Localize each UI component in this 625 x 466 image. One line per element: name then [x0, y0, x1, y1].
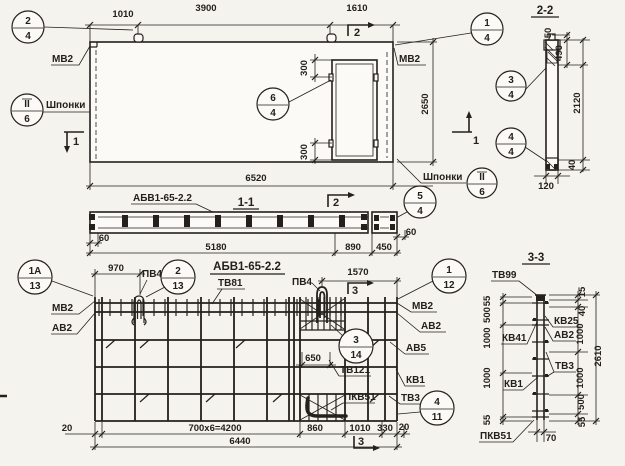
dim-970: 970 [108, 263, 124, 274]
dim-3900: 3900 [195, 3, 216, 14]
dim-right-500: 500 [576, 394, 587, 410]
cut-mark-3-top: 3 [348, 280, 374, 297]
opening-tab [329, 140, 333, 147]
dim-1610: 1610 [346, 3, 367, 14]
label-mv2-right: МВ2 [399, 54, 421, 65]
svg-text:3: 3 [358, 436, 364, 448]
dim-1010-cage: 1010 [349, 423, 370, 434]
svg-text:2: 2 [25, 16, 31, 27]
section-3-3: 3-3 55 500 1000 1000 55 15 40 1000 1000 … [479, 252, 604, 444]
label-shponki-right: Шпонки [423, 172, 462, 183]
svg-text:11: 11 [432, 412, 443, 423]
bar-column [532, 295, 549, 420]
leader-pv4-b [312, 283, 320, 291]
dim-right-40: 40 [577, 306, 588, 317]
dim-left-500: 500 [482, 307, 493, 323]
svg-text:1А: 1А [29, 266, 42, 277]
dense-mesh-top [300, 297, 345, 330]
svg-text:4: 4 [508, 90, 514, 101]
label-kv1-s33: КВ1 [504, 379, 523, 390]
svg-text:II: II [479, 172, 485, 183]
dim-left-1000b: 1000 [482, 367, 493, 388]
dim-1010: 1010 [112, 9, 133, 20]
label-av5: АВ5 [406, 343, 426, 354]
dim-20-left: 20 [62, 423, 73, 434]
cut-mark-2-top: 2 [348, 22, 375, 39]
dim-1570: 1570 [347, 267, 368, 278]
panel-mark-label: АБВ1-65-2.2 [133, 193, 192, 204]
svg-text:4: 4 [508, 147, 514, 158]
svg-text:12: 12 [443, 280, 455, 291]
section-3-3-title: 3-3 [528, 252, 545, 264]
svg-text:1: 1 [484, 18, 490, 29]
opening-tab [329, 74, 333, 81]
svg-text:1: 1 [446, 265, 452, 276]
dim-5180: 5180 [205, 242, 226, 253]
dim-left-55b: 55 [482, 414, 493, 425]
hairpin-pv4-left [132, 296, 146, 325]
svg-text:6: 6 [479, 187, 485, 198]
dim-20-right: 20 [399, 422, 410, 433]
section-2-2: 2-2 50 490 2120 40 120 3 4 [496, 5, 590, 192]
dim-right-15: 15 [577, 286, 588, 297]
label-kv41: КВ41 [502, 333, 527, 344]
label-pkv51-cage: ПКВ51 [344, 392, 376, 403]
cut-mark-1-left: 1 [64, 132, 84, 153]
label-pkv51-s33: ПКВ51 [480, 431, 512, 442]
dim-right-1000b: 1000 [575, 367, 586, 388]
label-av2-s33: АВ2 [554, 330, 574, 341]
label-av2-cage-left: АВ2 [52, 323, 72, 334]
spacer-ticks [106, 340, 379, 402]
label-tv81: ТВ81 [218, 278, 243, 289]
dim-2610: 2610 [593, 345, 604, 366]
reinforcement-cage: АБВ1-65-2.2 970 1570 [18, 259, 466, 451]
dim-left-55a: 55 [482, 295, 493, 306]
leader-pv4-a [140, 280, 147, 294]
dim-330: 330 [377, 423, 393, 434]
slab-section [89, 212, 368, 233]
cage-title: АБВ1-65-2.2 [213, 261, 281, 273]
label-pv4-a: ПВ4 [142, 269, 162, 280]
dim-700x6: 700х6=4200 [188, 423, 241, 434]
callout-node-left: II 6 [11, 94, 43, 126]
svg-text:14: 14 [350, 350, 362, 361]
svg-text:4: 4 [434, 397, 440, 408]
label-tv99: ТВ99 [492, 270, 517, 281]
opening-tab [374, 74, 378, 81]
plan-view: 1010 3900 1610 2650 6520 300 300 МВ2 МВ2… [11, 3, 503, 218]
svg-text:1: 1 [73, 136, 79, 148]
section-1-1: АБВ1-65-2.2 1-1 2 6 [86, 192, 416, 256]
svg-text:4: 4 [270, 108, 276, 119]
svg-text:4: 4 [508, 132, 514, 143]
label-kv1-cage: КВ1 [406, 375, 425, 386]
svg-text:4: 4 [417, 206, 423, 217]
slab-end-piece [372, 212, 397, 233]
label-tv3-s33: ТВ3 [555, 361, 574, 372]
svg-text:3: 3 [508, 75, 514, 86]
dim-70: 70 [546, 433, 557, 444]
dim-6520: 6520 [245, 173, 266, 184]
svg-text:1: 1 [473, 135, 479, 147]
cut-mark-3-bottom: 3 [354, 436, 380, 451]
section-1-1-title: 1-1 [238, 197, 255, 209]
label-tv3-cage: ТВ3 [401, 393, 420, 404]
dim-650: 650 [305, 353, 321, 364]
svg-text:2: 2 [175, 266, 181, 277]
dim-1570-group [318, 277, 401, 297]
svg-text:4: 4 [25, 31, 31, 42]
dim-490: 490 [554, 45, 565, 61]
callout-node-right: II 6 [467, 168, 497, 198]
callout-1a-13: 1А 13 [18, 260, 93, 296]
callout-3-14: 3 14 [331, 325, 373, 363]
dim-300-bottom: 300 [299, 144, 310, 160]
label-pv4-b: ПВ4 [292, 277, 312, 288]
label-mv2-cage-right: МВ2 [412, 301, 434, 312]
lifting-loop-right [327, 34, 336, 42]
svg-text:4: 4 [484, 33, 490, 44]
drawing-sheet: 1010 3900 1610 2650 6520 300 300 МВ2 МВ2… [0, 0, 625, 466]
dim-right-55: 55 [577, 416, 588, 427]
svg-text:13: 13 [172, 281, 184, 292]
dim-2650: 2650 [420, 93, 431, 114]
dim-890: 890 [345, 242, 361, 253]
svg-text:2: 2 [354, 27, 360, 39]
callout-5-4: 5 4 [396, 186, 436, 218]
label-mv2-cage-left: МВ2 [52, 303, 74, 314]
svg-text:II: II [24, 99, 30, 110]
label-tv121: ТВ121 [340, 365, 370, 376]
dim-6440: 6440 [229, 436, 250, 447]
svg-text:2: 2 [333, 197, 339, 209]
dim-50: 50 [543, 28, 554, 39]
dim-300-top: 300 [299, 60, 310, 76]
dim-60-left: 60 [99, 233, 110, 244]
label-av2-cage-right: АВ2 [421, 321, 441, 332]
svg-text:3: 3 [352, 285, 358, 297]
svg-text:13: 13 [29, 281, 41, 292]
opening-tab [374, 140, 378, 147]
dim-450: 450 [376, 242, 392, 253]
label-mv2-left: МВ2 [52, 54, 74, 65]
dim-2120: 2120 [572, 92, 583, 113]
dim-60-right: 60 [406, 227, 417, 238]
cut-mark-2: 2 [328, 192, 355, 209]
cut-mark-1-right: 1 [452, 111, 479, 147]
label-shponki-left: Шпонки [46, 100, 85, 111]
lifting-loop-left [134, 34, 143, 42]
dim-40: 40 [567, 160, 578, 171]
callout-1-4: 1 4 [395, 13, 503, 45]
dim-860: 860 [307, 423, 323, 434]
dim-120: 120 [538, 181, 554, 192]
callout-4-4: 4 4 [496, 128, 546, 161]
label-kv25: КВ25 [554, 316, 579, 327]
leader-tv99 [491, 281, 538, 296]
callout-1-12: 1 12 [398, 259, 466, 299]
panel-working-drawing: 1010 3900 1610 2650 6520 300 300 МВ2 МВ2… [0, 0, 625, 466]
section-2-2-title: 2-2 [537, 5, 554, 17]
svg-text:6: 6 [270, 93, 276, 104]
svg-text:3: 3 [353, 335, 359, 346]
svg-text:6: 6 [24, 114, 30, 125]
svg-text:5: 5 [417, 191, 423, 202]
dim-left-1000a: 1000 [482, 327, 493, 348]
callout-3-4: 3 4 [496, 68, 546, 101]
leader-tv81 [212, 289, 245, 304]
